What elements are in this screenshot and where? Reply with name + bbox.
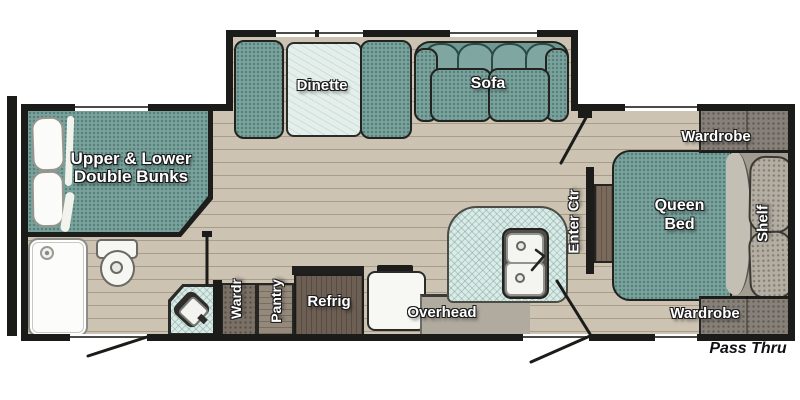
overhead-label: Overhead xyxy=(382,304,502,321)
bath-kitchen-wall xyxy=(213,280,222,334)
queen-bed-label-line2: Bed xyxy=(622,215,737,234)
queen-bed-label: Queen Bed xyxy=(622,196,737,234)
bunks-label-line2: Double Bunks xyxy=(31,168,231,186)
sofa-label: Sofa xyxy=(428,75,548,93)
front-cap-wall xyxy=(7,96,17,336)
toilet-flush-button xyxy=(110,261,123,274)
dinette-label: Dinette xyxy=(252,77,392,94)
pass-thru-label: Pass Thru xyxy=(668,340,800,358)
wardrobe-bottom-label: Wardrobe xyxy=(615,305,795,322)
bath-door-jamb xyxy=(202,231,212,237)
refrigerator-label: Refrig xyxy=(294,293,364,310)
bedroom-top-window xyxy=(625,104,697,111)
bunks-label: Upper & Lower Double Bunks xyxy=(31,150,231,186)
bath-entry-door-opening xyxy=(70,334,147,341)
slideout-left-wall xyxy=(226,30,233,111)
main-entry-door-opening xyxy=(523,334,589,341)
dinette-window-mullion xyxy=(315,30,319,37)
left-wall xyxy=(21,104,28,341)
shower-drain xyxy=(40,246,54,260)
queen-bed-label-line1: Queen xyxy=(622,196,737,215)
kitchen-sink-bowl-top xyxy=(506,233,544,264)
kitchen-sink-bowl-bottom xyxy=(505,262,545,296)
sofa-window xyxy=(450,30,537,37)
floor-plan-canvas: Upper & Lower Double Bunks Dinette Sofa … xyxy=(0,0,800,400)
entertainment-center-label: Enter Ctr xyxy=(566,167,583,277)
shower xyxy=(28,238,88,337)
shelf-label: Shelf xyxy=(755,194,772,254)
wardrobe-small-label: Wardr xyxy=(228,264,244,334)
bedroom-door-jamb xyxy=(578,111,592,118)
dinette-window xyxy=(276,30,363,37)
slideout-right-wall xyxy=(571,30,578,111)
bunk-window xyxy=(75,104,148,111)
pantry-label: Pantry xyxy=(268,266,284,336)
stove xyxy=(367,271,426,331)
wardrobe-top-label: Wardrobe xyxy=(631,128,800,145)
bunks-label-line1: Upper & Lower xyxy=(31,150,231,168)
tv-wall xyxy=(586,167,594,274)
